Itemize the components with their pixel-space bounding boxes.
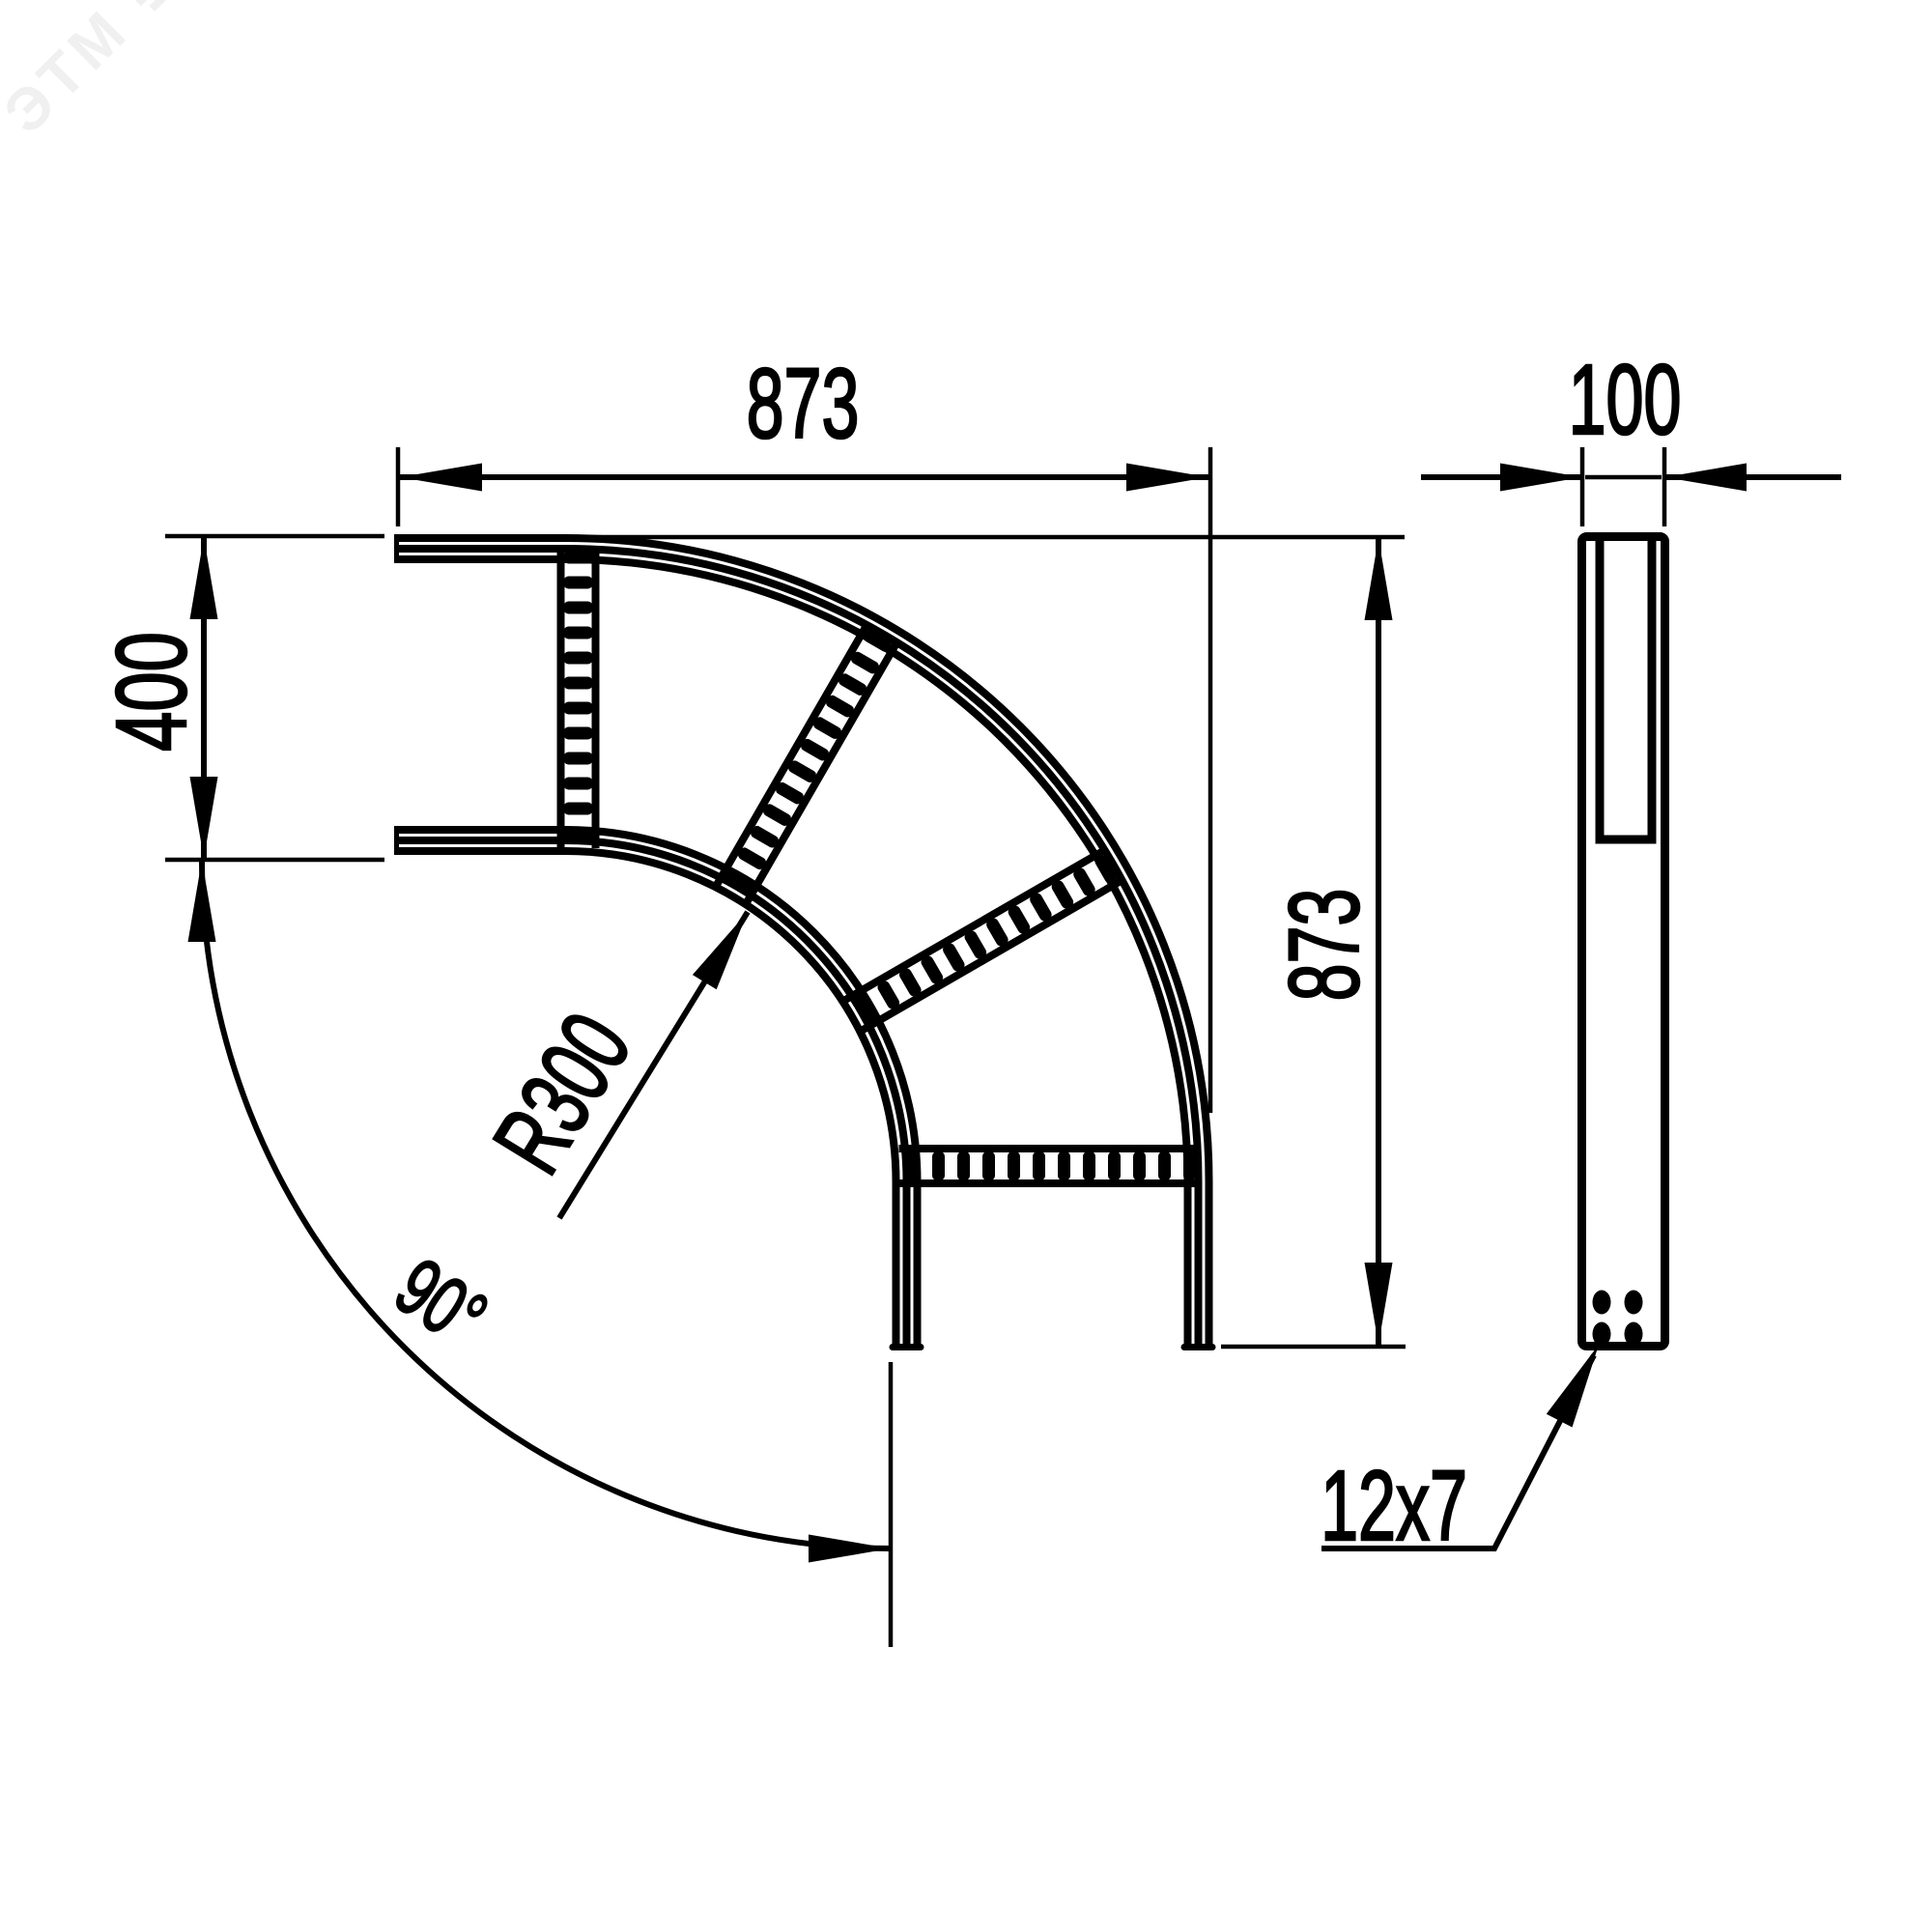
svg-text:873: 873 xyxy=(747,347,860,459)
svg-text:400: 400 xyxy=(97,632,208,752)
svg-text:12x7: 12x7 xyxy=(1321,1449,1467,1561)
svg-text:873: 873 xyxy=(1267,889,1379,1002)
svg-text:100: 100 xyxy=(1569,343,1682,455)
